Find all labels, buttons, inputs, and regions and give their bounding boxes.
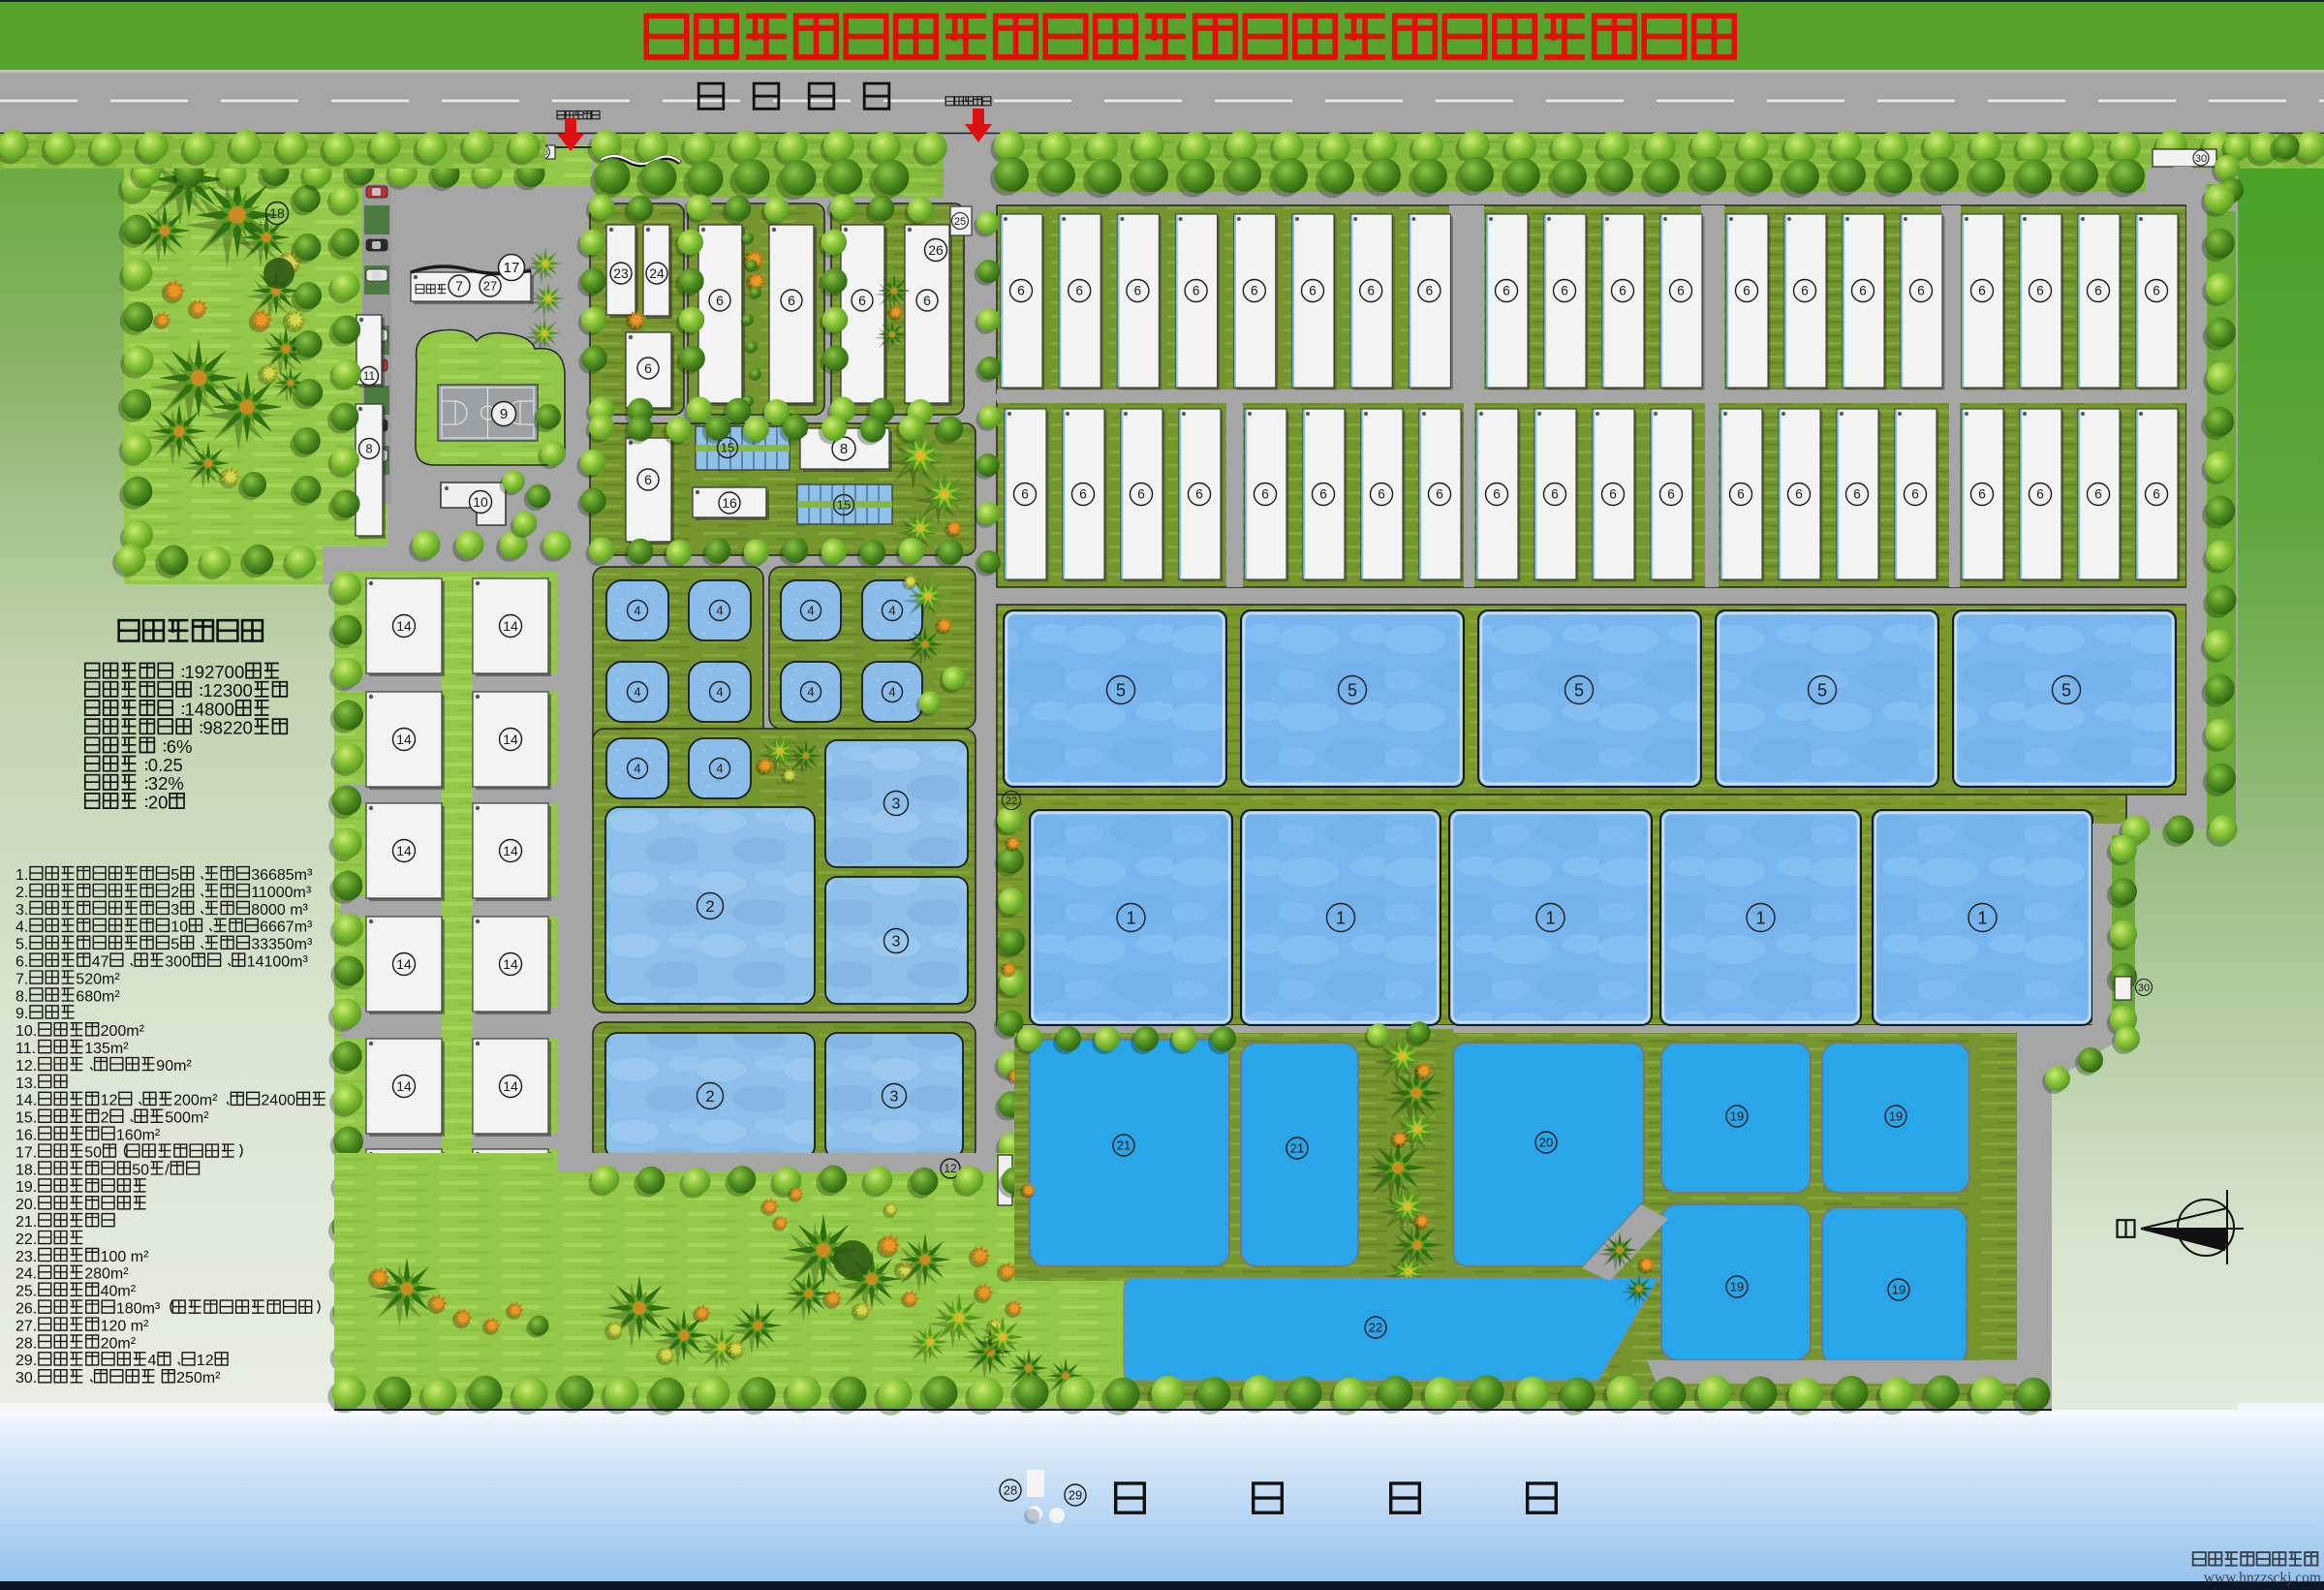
svg-text:4.: 4. [15, 920, 28, 936]
svg-text:8000 m³: 8000 m³ [251, 902, 308, 919]
svg-text:18: 18 [269, 205, 285, 221]
svg-text:4: 4 [807, 685, 814, 700]
svg-text:3.: 3. [15, 902, 28, 919]
svg-text:1: 1 [1755, 908, 1765, 927]
svg-text:6: 6 [1367, 284, 1375, 298]
svg-text:200m²: 200m² [101, 1023, 145, 1040]
svg-text:680m²: 680m² [76, 988, 120, 1005]
svg-text:100 m²: 100 m² [101, 1249, 149, 1265]
svg-text:22: 22 [1369, 1321, 1382, 1335]
svg-text:28: 28 [1004, 1483, 1017, 1498]
svg-text:14: 14 [503, 843, 518, 858]
svg-text:20m²: 20m² [101, 1335, 137, 1352]
svg-text:19: 19 [1892, 1283, 1906, 1297]
svg-text:6: 6 [1859, 284, 1867, 298]
svg-text:6: 6 [1561, 284, 1568, 298]
svg-text:13.: 13. [15, 1076, 37, 1092]
svg-text:6: 6 [1667, 487, 1675, 502]
svg-text:14: 14 [396, 1078, 412, 1094]
svg-text:2: 2 [705, 1087, 714, 1106]
svg-text:120 m²: 120 m² [101, 1318, 149, 1334]
svg-text:11: 11 [363, 369, 376, 383]
svg-text:3: 3 [890, 1089, 899, 1106]
svg-text:11.: 11. [15, 1041, 36, 1057]
svg-text:6: 6 [1378, 487, 1385, 502]
svg-text:6: 6 [1075, 284, 1083, 298]
svg-text:180m³: 180m³ [116, 1301, 161, 1318]
svg-text:14: 14 [396, 618, 412, 634]
svg-text:6: 6 [644, 360, 652, 376]
svg-text:4: 4 [148, 1353, 157, 1369]
svg-text:22: 22 [1006, 795, 1017, 807]
svg-text:6: 6 [1309, 284, 1317, 298]
svg-text:32%: 32% [148, 773, 184, 794]
svg-text:15: 15 [837, 498, 851, 513]
svg-text:8: 8 [840, 441, 848, 457]
svg-text:6: 6 [1261, 487, 1269, 502]
svg-text:21.: 21. [15, 1214, 37, 1231]
svg-text:12: 12 [944, 1162, 957, 1175]
svg-text:14: 14 [396, 956, 412, 972]
svg-text:6: 6 [1737, 487, 1745, 502]
svg-text:14: 14 [503, 732, 518, 747]
svg-text:5: 5 [2061, 680, 2071, 700]
svg-text:6.: 6. [15, 954, 28, 971]
svg-text:6: 6 [1021, 487, 1029, 502]
svg-text:6: 6 [1493, 487, 1501, 502]
svg-text:90m²: 90m² [156, 1058, 192, 1075]
svg-text:www.hnzzsckj.com: www.hnzzsckj.com [2204, 1570, 2321, 1586]
svg-text:1: 1 [1977, 908, 1987, 927]
svg-text:21: 21 [1117, 1138, 1131, 1153]
svg-text:15: 15 [721, 441, 734, 455]
svg-text:6: 6 [858, 293, 866, 308]
svg-text:36685m³: 36685m³ [251, 867, 313, 884]
svg-text:520m²: 520m² [76, 971, 120, 987]
svg-text:27: 27 [483, 279, 497, 294]
svg-text:5: 5 [1116, 680, 1126, 700]
svg-text:2.: 2. [15, 885, 28, 901]
svg-text:7: 7 [455, 278, 463, 294]
svg-text:14800: 14800 [185, 699, 234, 719]
svg-text:6: 6 [1551, 487, 1559, 502]
svg-text:33350m³: 33350m³ [251, 937, 313, 953]
svg-text:21: 21 [1290, 1141, 1304, 1156]
svg-text:4: 4 [716, 685, 723, 700]
svg-text:5: 5 [1574, 680, 1584, 700]
svg-text:6: 6 [1853, 487, 1861, 502]
svg-text:6: 6 [2153, 284, 2160, 298]
svg-text:5: 5 [1817, 680, 1827, 700]
svg-text:3: 3 [170, 902, 179, 919]
svg-text:9: 9 [500, 406, 508, 422]
svg-text:6: 6 [1978, 487, 1986, 502]
svg-text:16.: 16. [15, 1128, 37, 1144]
svg-text:24: 24 [649, 265, 665, 281]
svg-text:9.: 9. [15, 1006, 28, 1022]
svg-text:30.: 30. [15, 1370, 37, 1387]
svg-text:6: 6 [923, 293, 931, 308]
svg-text:19: 19 [1730, 1109, 1744, 1124]
svg-text:8: 8 [365, 442, 372, 456]
svg-text:4: 4 [716, 604, 723, 618]
svg-text:20: 20 [1539, 1136, 1553, 1150]
svg-text:4: 4 [807, 604, 814, 618]
svg-text:10: 10 [170, 920, 188, 936]
svg-text:14: 14 [396, 732, 412, 747]
svg-text:6: 6 [2153, 487, 2160, 502]
svg-text:4: 4 [888, 685, 895, 700]
svg-text:6: 6 [1193, 284, 1200, 298]
svg-text:19: 19 [1730, 1280, 1744, 1294]
svg-text:14.: 14. [15, 1093, 37, 1109]
svg-text:11000m³: 11000m³ [251, 885, 312, 901]
svg-text:26: 26 [928, 242, 944, 258]
svg-text:98220: 98220 [202, 718, 252, 738]
svg-text:25: 25 [954, 216, 966, 228]
svg-text:2400: 2400 [261, 1093, 295, 1109]
svg-text:5: 5 [170, 937, 179, 953]
svg-text:6: 6 [2094, 487, 2102, 502]
svg-text:300: 300 [165, 954, 191, 971]
svg-text:18.: 18. [15, 1162, 37, 1178]
svg-text:6: 6 [1609, 487, 1617, 502]
svg-text:1: 1 [1126, 908, 1135, 927]
svg-text:20.: 20. [15, 1197, 37, 1213]
svg-text:4: 4 [716, 762, 723, 776]
svg-text:6: 6 [1079, 487, 1087, 502]
svg-text:6: 6 [1251, 284, 1258, 298]
svg-text:500m²: 500m² [165, 1110, 209, 1127]
svg-text:30: 30 [2138, 982, 2150, 994]
svg-text:47: 47 [92, 954, 109, 971]
svg-text:6: 6 [2036, 487, 2044, 502]
svg-text:12: 12 [197, 1353, 214, 1369]
svg-text:50: 50 [84, 1144, 102, 1161]
svg-text:6: 6 [1319, 487, 1327, 502]
svg-text:6: 6 [1795, 487, 1803, 502]
svg-text:6: 6 [1137, 487, 1145, 502]
svg-text:5: 5 [1348, 680, 1357, 700]
svg-text:16: 16 [722, 495, 737, 511]
svg-text:14: 14 [503, 1078, 518, 1094]
svg-text:25.: 25. [15, 1284, 37, 1300]
svg-text:15.: 15. [15, 1110, 37, 1127]
svg-text:/: / [165, 1162, 170, 1178]
svg-text:5: 5 [170, 867, 179, 884]
svg-text:19: 19 [1889, 1109, 1903, 1124]
svg-text:6: 6 [1195, 487, 1203, 502]
svg-text:6: 6 [1978, 284, 1986, 298]
svg-text:6: 6 [1801, 284, 1809, 298]
svg-text:6: 6 [1134, 284, 1142, 298]
svg-text:6: 6 [1743, 284, 1751, 298]
svg-text:2: 2 [101, 1110, 109, 1127]
svg-text:4: 4 [634, 762, 640, 776]
svg-text:28.: 28. [15, 1335, 37, 1352]
svg-text:17: 17 [504, 260, 520, 276]
svg-text:280m²: 280m² [84, 1266, 129, 1283]
svg-text:29: 29 [1069, 1488, 1082, 1503]
svg-text:14100m³: 14100m³ [247, 954, 309, 971]
svg-text:135m²: 135m² [84, 1041, 129, 1057]
svg-text:22.: 22. [15, 1231, 37, 1248]
svg-text:200m²: 200m² [173, 1093, 218, 1109]
svg-text:29.: 29. [15, 1353, 37, 1369]
svg-text:5.: 5. [15, 937, 28, 953]
svg-text:3: 3 [892, 934, 901, 951]
svg-text:0.25: 0.25 [148, 755, 183, 775]
svg-text:4: 4 [888, 604, 895, 618]
svg-text:4: 4 [634, 685, 640, 700]
svg-text:6667m³: 6667m³ [260, 920, 313, 936]
svg-text:6: 6 [788, 293, 795, 308]
svg-text:27.: 27. [15, 1318, 37, 1334]
svg-text:6: 6 [644, 472, 652, 487]
svg-text:10.: 10. [15, 1023, 37, 1040]
svg-text:6: 6 [1436, 487, 1443, 502]
svg-text:24.: 24. [15, 1266, 37, 1283]
svg-text:50: 50 [132, 1162, 149, 1178]
svg-text:10: 10 [473, 494, 488, 510]
svg-text:6: 6 [2036, 284, 2044, 298]
svg-text:6: 6 [1917, 284, 1925, 298]
svg-text:40m²: 40m² [101, 1284, 137, 1300]
svg-text:7.: 7. [15, 971, 28, 987]
svg-text:19.: 19. [15, 1179, 37, 1196]
svg-text:6: 6 [716, 293, 724, 308]
svg-text:160m²: 160m² [116, 1128, 161, 1144]
svg-text:6: 6 [1426, 284, 1434, 298]
svg-text:4: 4 [634, 604, 640, 618]
svg-text:17.: 17. [15, 1144, 37, 1161]
svg-text:6%: 6% [167, 736, 193, 757]
svg-text:250m²: 250m² [176, 1370, 221, 1387]
svg-text:6: 6 [1619, 284, 1627, 298]
svg-text:1: 1 [1336, 908, 1346, 927]
svg-text:14: 14 [396, 843, 412, 858]
svg-text:1: 1 [1545, 908, 1555, 927]
svg-text:6: 6 [1503, 284, 1510, 298]
svg-text:23: 23 [613, 265, 629, 281]
svg-text:14: 14 [503, 956, 518, 972]
svg-text:1.: 1. [15, 867, 28, 884]
svg-text:12: 12 [101, 1093, 118, 1109]
svg-text:6: 6 [1911, 487, 1919, 502]
svg-text:6: 6 [2094, 284, 2102, 298]
svg-text:8.: 8. [15, 988, 28, 1005]
svg-text:12300: 12300 [202, 680, 252, 701]
svg-text:2: 2 [705, 897, 714, 916]
svg-text:12.: 12. [15, 1058, 37, 1075]
svg-text:30: 30 [2195, 153, 2207, 165]
svg-text:3: 3 [892, 796, 901, 813]
svg-text:192700: 192700 [185, 662, 245, 682]
svg-text:2: 2 [170, 885, 179, 901]
svg-text:23.: 23. [15, 1249, 37, 1265]
svg-text:6: 6 [1017, 284, 1025, 298]
svg-text:20: 20 [148, 792, 169, 812]
svg-text:6: 6 [1677, 284, 1685, 298]
svg-text:14: 14 [503, 618, 518, 634]
svg-text:26.: 26. [15, 1301, 37, 1318]
